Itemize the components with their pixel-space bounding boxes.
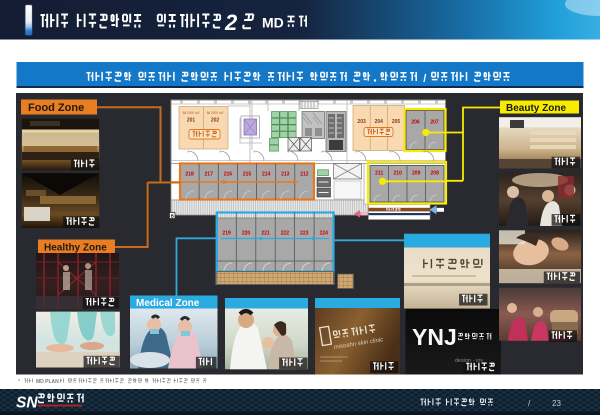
svg-text:203: 203 [357, 119, 366, 125]
svg-text:209: 209 [412, 171, 421, 177]
svg-text:2: 2 [224, 10, 238, 35]
svg-text:Medical Zone: Medical Zone [136, 298, 200, 309]
svg-text:206: 206 [411, 120, 420, 126]
svg-text:YNJ: YNJ [412, 324, 457, 350]
svg-text:204: 204 [375, 119, 384, 125]
svg-text:208: 208 [431, 171, 440, 177]
svg-text:56.2000 m2: 56.2000 m2 [207, 111, 224, 115]
svg-text:202: 202 [211, 118, 220, 124]
svg-text:205: 205 [392, 119, 401, 125]
svg-text:212: 212 [300, 172, 309, 178]
svg-text:213: 213 [281, 172, 290, 178]
svg-text:/: / [423, 73, 426, 85]
svg-text:215: 215 [243, 172, 252, 178]
svg-text:222: 222 [281, 231, 290, 237]
svg-text:Healthy Zone: Healthy Zone [44, 243, 107, 254]
svg-text:224: 224 [320, 231, 329, 237]
svg-text:210: 210 [394, 171, 403, 177]
svg-text:23: 23 [552, 399, 561, 408]
svg-text:Beauty Zone: Beauty Zone [506, 103, 566, 114]
svg-text:220: 220 [242, 231, 251, 237]
svg-text:56.1000 m2: 56.1000 m2 [183, 111, 200, 115]
svg-text:207: 207 [430, 120, 439, 126]
svg-text:214: 214 [262, 172, 271, 178]
svg-text:Food Zone: Food Zone [28, 102, 84, 114]
svg-text:MD: MD [262, 15, 284, 31]
svg-text:216: 216 [224, 172, 233, 178]
svg-text:218: 218 [185, 172, 194, 178]
svg-text:223: 223 [300, 231, 309, 237]
svg-text:219: 219 [222, 231, 231, 237]
svg-text:MD PLAN: MD PLAN [36, 379, 59, 385]
svg-text:217: 217 [205, 172, 214, 178]
svg-text:221: 221 [261, 231, 270, 237]
svg-text:201: 201 [187, 118, 196, 124]
svg-text:SN: SN [16, 395, 38, 412]
svg-text:*: * [18, 379, 21, 385]
svg-text:211: 211 [375, 171, 383, 177]
